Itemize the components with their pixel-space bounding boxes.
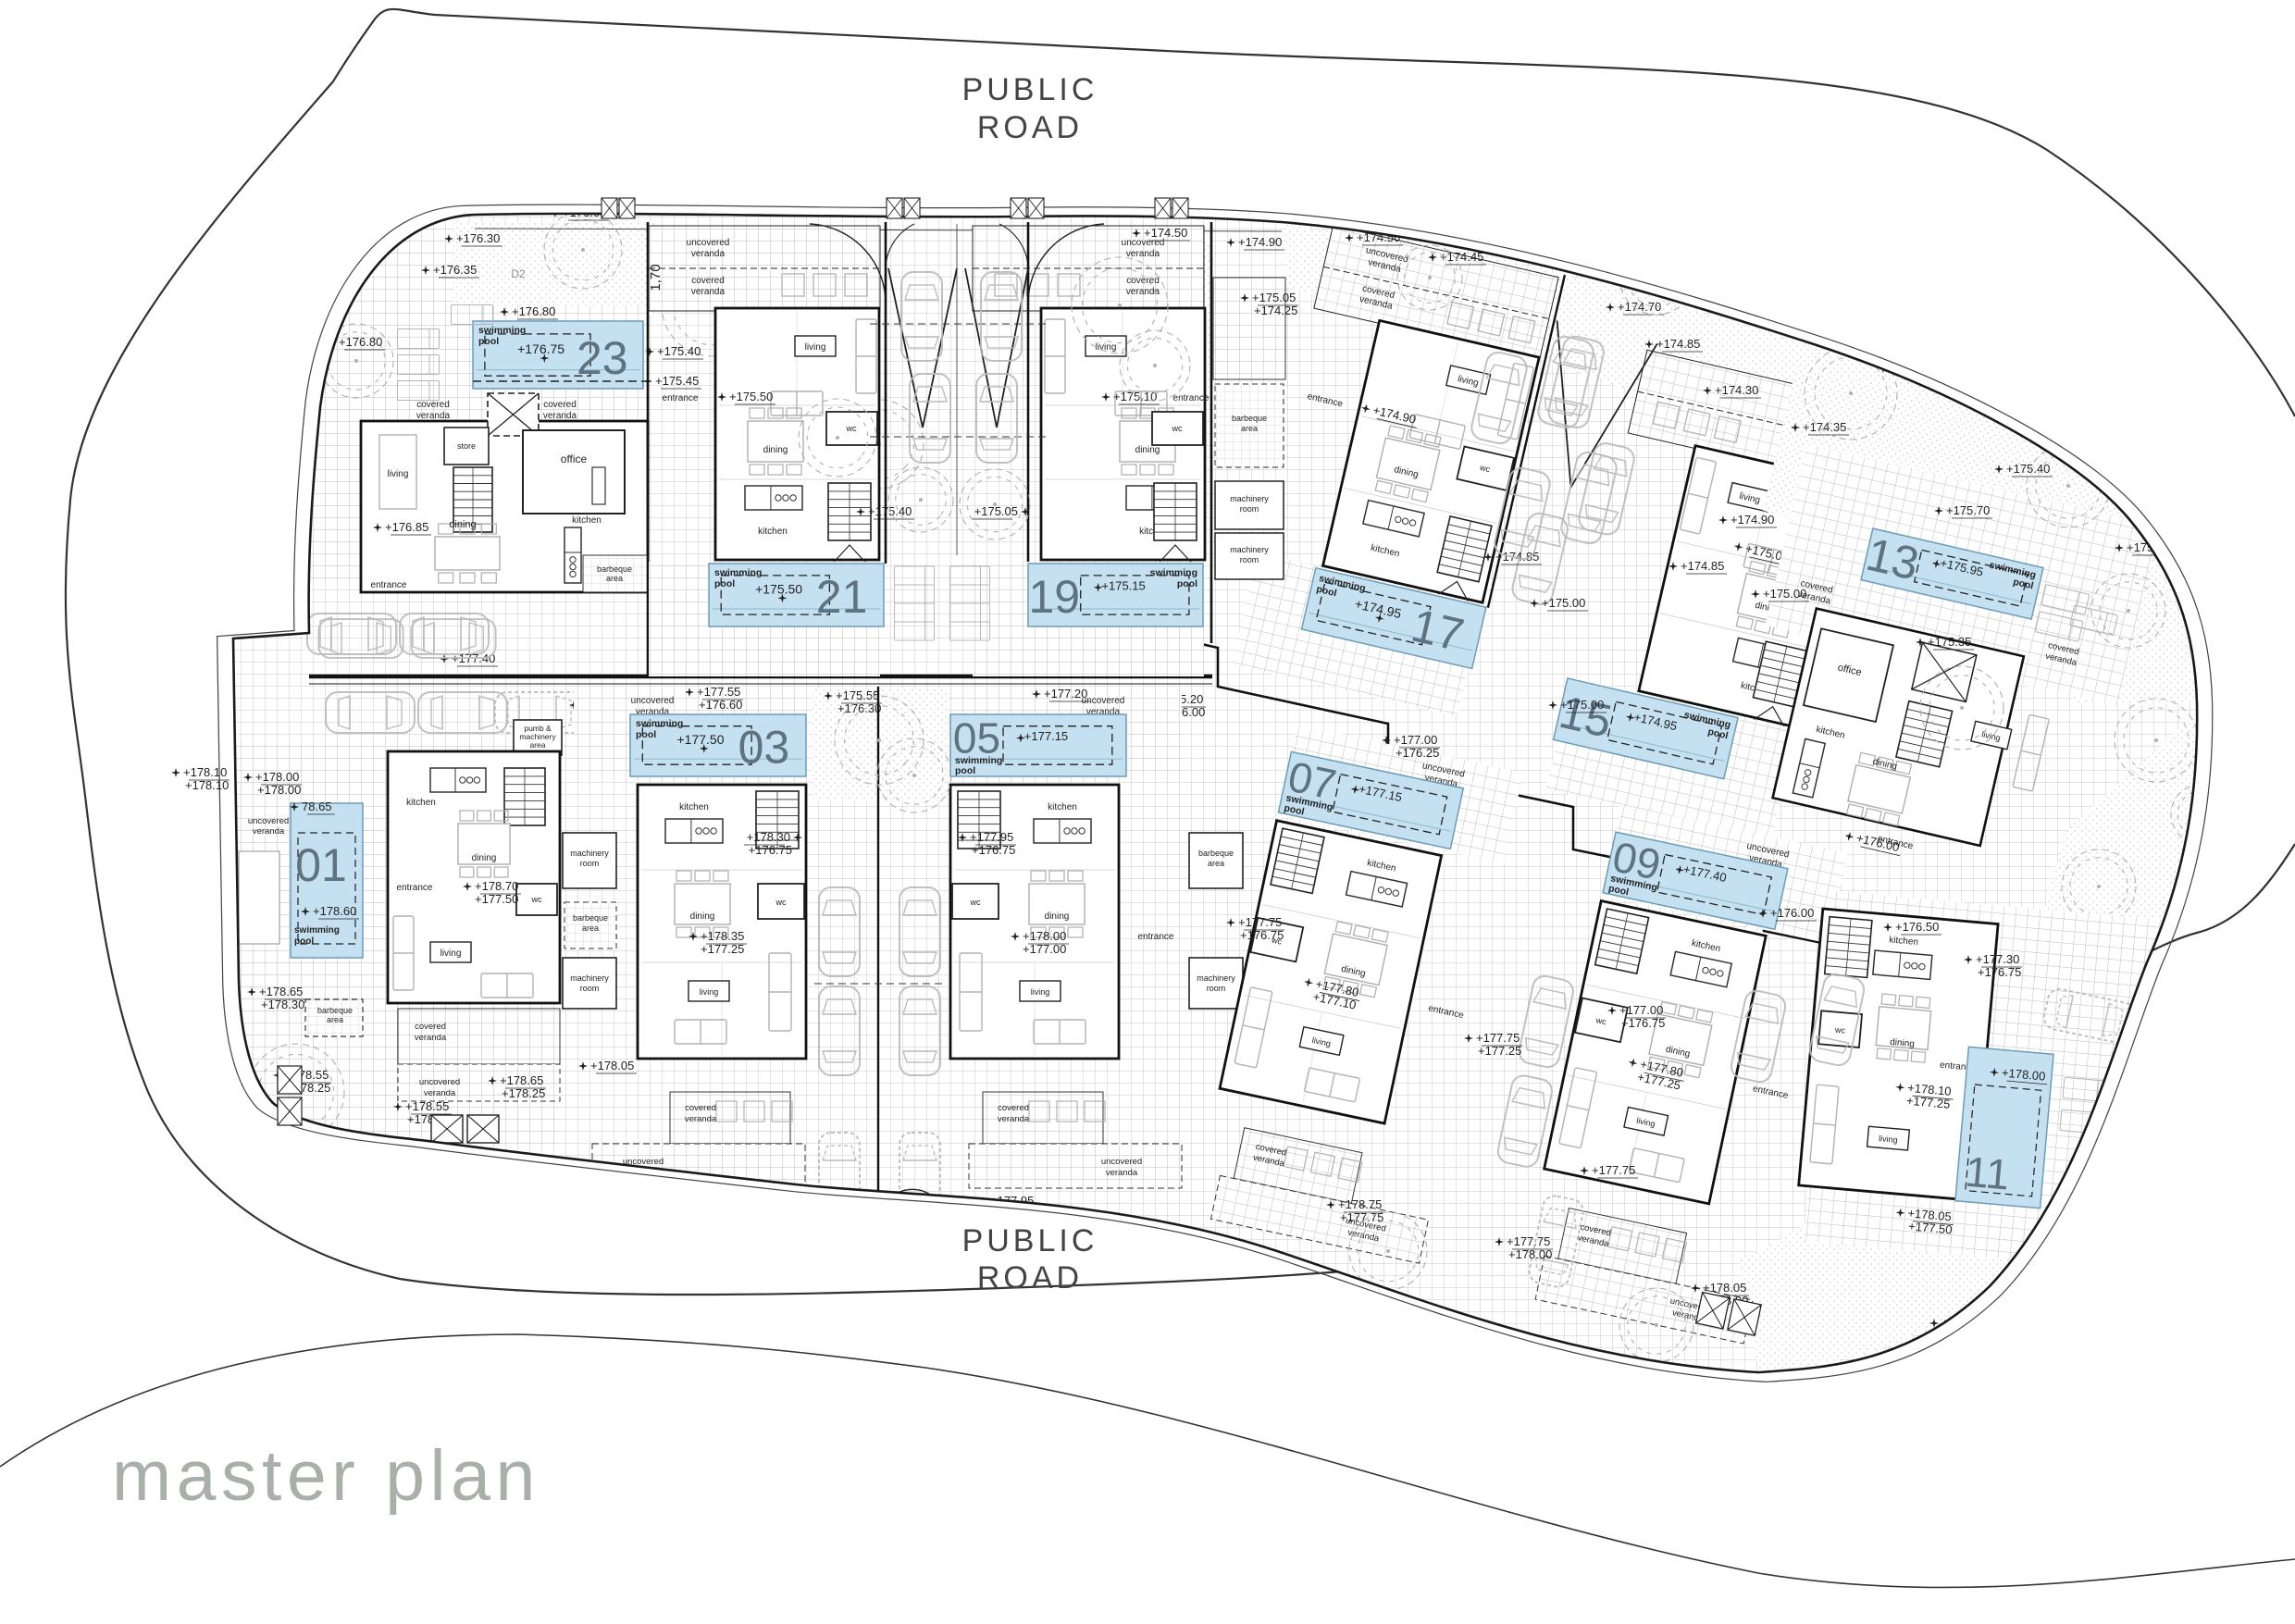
svg-text:+177.75: +177.75 [1340, 1210, 1383, 1224]
svg-text:living: living [805, 342, 826, 353]
svg-text:area: area [529, 740, 545, 750]
svg-text:covered: covered [685, 1103, 716, 1113]
svg-text:21: 21 [816, 571, 868, 623]
svg-text:+178.05: +178.05 [1703, 1281, 1746, 1295]
svg-text:+175.40: +175.40 [868, 504, 912, 518]
svg-text:+176.80: +176.80 [339, 335, 382, 349]
svg-text:entrance: entrance [1138, 932, 1174, 942]
svg-text:area: area [1241, 424, 1258, 433]
svg-text:+174.85: +174.85 [1656, 337, 1700, 351]
svg-text:+174.85: +174.85 [1495, 550, 1539, 564]
svg-text:area: area [582, 924, 599, 933]
svg-text:entrance: entrance [1173, 393, 1210, 403]
svg-text:barbeque: barbeque [1198, 849, 1234, 858]
svg-text:machinery: machinery [1197, 973, 1235, 983]
svg-text:uncovered: uncovered [631, 696, 675, 706]
svg-text:machinery: machinery [1230, 494, 1269, 503]
svg-text:room: room [1207, 984, 1226, 993]
svg-text:machinery: machinery [1230, 545, 1269, 554]
svg-text:+178.70: +178.70 [475, 879, 518, 893]
svg-text:+177.95: +177.95 [970, 830, 1013, 844]
svg-text:+174.25: +174.25 [1254, 304, 1297, 317]
svg-text:veranda: veranda [416, 411, 451, 421]
svg-text:+175.50: +175.50 [755, 582, 802, 597]
svg-text:veranda: veranda [424, 1088, 456, 1098]
svg-text:covered: covered [415, 1022, 446, 1032]
svg-text:master plan: master plan [112, 1436, 540, 1516]
svg-text:+175.05: +175.05 [974, 504, 1018, 518]
svg-text:+177.25: +177.25 [1478, 1044, 1521, 1058]
svg-text:kitchen: kitchen [406, 798, 436, 808]
svg-text:veranda: veranda [253, 826, 285, 837]
svg-text:+174.30: +174.30 [1715, 383, 1758, 397]
svg-text:01: 01 [295, 839, 347, 891]
svg-text:barbeque: barbeque [317, 1006, 353, 1015]
svg-text:veranda: veranda [691, 287, 726, 297]
svg-text:barbeque: barbeque [573, 913, 608, 923]
svg-text:+175.00: +175.00 [1763, 587, 1806, 601]
svg-text:+178.00: +178.00 [1023, 929, 1066, 943]
svg-text:23: 23 [577, 332, 628, 384]
svg-text:covered: covered [416, 400, 450, 410]
svg-text:+177.25: +177.25 [701, 942, 744, 956]
svg-text:area: area [1208, 859, 1224, 868]
svg-text:kitchen: kitchen [679, 802, 709, 812]
svg-text:room: room [580, 859, 600, 868]
svg-text:+177.00: +177.00 [1619, 1003, 1663, 1017]
svg-text:uncovered: uncovered [1101, 1157, 1142, 1167]
svg-text:+177.75: +177.75 [1592, 1163, 1635, 1177]
svg-text:covered: covered [998, 1103, 1029, 1113]
svg-text:+177.50: +177.50 [475, 892, 518, 906]
svg-text:dining: dining [1135, 445, 1160, 455]
svg-text:+175.45: +175.45 [655, 374, 699, 388]
svg-text:03: 03 [738, 721, 790, 773]
svg-text:+176.00: +176.00 [1770, 906, 1814, 920]
svg-text:dining: dining [690, 911, 715, 922]
svg-text:wc: wc [970, 898, 981, 907]
svg-text:room: room [580, 984, 600, 993]
svg-text:+175.00: +175.00 [1560, 698, 1604, 712]
svg-text:+176.80: +176.80 [512, 304, 555, 318]
svg-text:+177.15: +177.15 [1024, 729, 1068, 743]
svg-text:swimming: swimming [294, 925, 340, 936]
svg-text:+175.50: +175.50 [729, 390, 773, 403]
svg-text:+174.70: +174.70 [1618, 300, 1661, 314]
svg-text:+178.75: +178.75 [1338, 1197, 1382, 1211]
svg-text:covered: covered [543, 400, 577, 410]
svg-text:office: office [561, 452, 588, 465]
svg-text:entrance: entrance [397, 883, 433, 893]
svg-text:pool: pool [294, 936, 314, 947]
svg-text:78.65: 78.65 [302, 800, 332, 813]
svg-text:PUBLIC: PUBLIC [962, 1223, 1098, 1258]
svg-text:living: living [1879, 1134, 1898, 1145]
svg-text:+177.50: +177.50 [677, 732, 725, 747]
svg-text:entrance: entrance [663, 393, 699, 403]
svg-text:dining: dining [472, 853, 497, 863]
svg-text:room: room [1240, 555, 1259, 564]
svg-text:+176.75: +176.75 [1621, 1016, 1665, 1030]
svg-text:+174.90: +174.90 [1731, 513, 1774, 527]
svg-text:living: living [440, 948, 462, 959]
svg-text:kitchen: kitchen [572, 515, 602, 526]
svg-text:+175.40: +175.40 [657, 344, 701, 358]
svg-text:uncovered: uncovered [1082, 696, 1125, 706]
svg-text:+178.00: +178.00 [255, 770, 299, 784]
svg-text:+175.40: +175.40 [2006, 462, 2050, 476]
svg-text:+178.10: +178.10 [183, 765, 227, 779]
svg-text:+176.75: +176.75 [517, 341, 564, 356]
svg-text:+176.60: +176.60 [699, 698, 742, 712]
svg-text:veranda: veranda [691, 249, 726, 259]
svg-text:+178.30: +178.30 [261, 998, 304, 1011]
svg-text:+178.65: +178.65 [259, 985, 303, 998]
svg-text:barbeque: barbeque [597, 564, 632, 574]
svg-text:covered: covered [1126, 276, 1160, 286]
svg-text:pool: pool [636, 729, 656, 740]
svg-text:+177.20: +177.20 [1044, 687, 1087, 700]
svg-text:ROAD: ROAD [977, 1260, 1083, 1295]
svg-text:swimming: swimming [636, 718, 683, 729]
svg-text:+175.10: +175.10 [1113, 390, 1157, 403]
svg-text:swimming: swimming [478, 325, 526, 336]
svg-text:veranda: veranda [1126, 249, 1160, 259]
svg-text:kitchen: kitchen [758, 527, 788, 537]
svg-text:ROAD: ROAD [977, 110, 1083, 145]
svg-text:wc: wc [531, 895, 542, 904]
svg-text:+176.25: +176.25 [1396, 746, 1439, 760]
svg-text:+175.70: +175.70 [1946, 503, 1990, 517]
svg-text:dining: dining [763, 445, 788, 455]
svg-text:machinery: machinery [570, 849, 609, 858]
svg-text:+175.55: +175.55 [836, 688, 879, 702]
svg-text:+174.85: +174.85 [1681, 559, 1724, 573]
svg-text:wc: wc [1834, 1025, 1846, 1035]
svg-text:+178.65: +178.65 [500, 1073, 543, 1087]
svg-text:+178.05: +178.05 [590, 1059, 634, 1072]
svg-text:wc: wc [775, 898, 787, 907]
svg-text:+176.75: +176.75 [1240, 928, 1284, 942]
svg-text:+178.25: +178.25 [502, 1086, 545, 1100]
svg-text:barbeque: barbeque [1232, 414, 1267, 423]
svg-text:+175.05: +175.05 [1252, 291, 1296, 304]
svg-text:dining: dining [449, 519, 476, 530]
svg-text:area: area [327, 1015, 343, 1024]
svg-text:room: room [1240, 504, 1259, 514]
svg-text:+176.75: +176.75 [972, 843, 1015, 857]
svg-text:living: living [1031, 987, 1050, 997]
svg-text:+176.50: +176.50 [1895, 920, 1939, 934]
svg-text:area: area [606, 574, 623, 583]
svg-text:+178.00: +178.00 [257, 783, 301, 797]
svg-text:living: living [388, 469, 409, 479]
svg-text:veranda: veranda [543, 411, 577, 421]
svg-text:+178.60: +178.60 [313, 904, 356, 918]
svg-text:D2: D2 [511, 267, 526, 280]
svg-text:11: 11 [1964, 1147, 2012, 1199]
svg-text:wc: wc [1172, 424, 1183, 433]
svg-text:+177.75: +177.75 [1507, 1234, 1550, 1248]
svg-text:veranda: veranda [685, 1114, 717, 1124]
svg-text:+176.30: +176.30 [456, 231, 500, 245]
svg-text:+178.35: +178.35 [701, 929, 744, 943]
svg-text:pool: pool [714, 578, 735, 589]
svg-text:machinery: machinery [570, 973, 609, 983]
svg-text:dining: dining [1045, 911, 1070, 922]
svg-text:+175.35: +175.35 [1928, 635, 1971, 649]
svg-text:+176.75: +176.75 [749, 843, 792, 857]
svg-text:PUBLIC: PUBLIC [962, 72, 1098, 107]
svg-text:+176.75: +176.75 [1978, 965, 2021, 979]
svg-text:+175.00: +175.00 [1542, 596, 1585, 610]
svg-text:veranda: veranda [1106, 1168, 1138, 1178]
svg-text:19: 19 [1028, 571, 1080, 623]
svg-text:+178.30: +178.30 [747, 830, 790, 844]
svg-text:kitchen: kitchen [1048, 802, 1077, 812]
svg-text:+178.10: +178.10 [185, 778, 229, 792]
svg-text:uncovered: uncovered [419, 1077, 460, 1087]
svg-text:+174.50: +174.50 [1144, 226, 1187, 240]
svg-text:dining: dining [1890, 1037, 1916, 1049]
svg-text:pool: pool [955, 765, 975, 776]
svg-text:swimming: swimming [714, 567, 762, 578]
svg-text:uncovered: uncovered [687, 238, 730, 248]
svg-text:living: living [700, 987, 719, 997]
svg-text:pool: pool [1177, 578, 1197, 589]
svg-text:entrance: entrance [371, 580, 407, 590]
svg-text:+175.15: +175.15 [1101, 579, 1145, 593]
svg-text:veranda: veranda [415, 1033, 447, 1043]
svg-text:store: store [457, 441, 476, 451]
svg-text:+177.00: +177.00 [1394, 733, 1437, 747]
svg-text:+174.90: +174.90 [1238, 235, 1282, 249]
svg-text:uncovered: uncovered [248, 816, 289, 826]
svg-text:+177.30: +177.30 [1976, 952, 2019, 966]
svg-text:+177.55: +177.55 [697, 685, 740, 699]
svg-text:wc: wc [846, 424, 857, 433]
svg-text:+176.85: +176.85 [385, 520, 428, 534]
svg-text:covered: covered [691, 276, 725, 286]
svg-text:1,70: 1,70 [648, 264, 664, 291]
svg-text:+178.00: +178.00 [1508, 1247, 1552, 1261]
svg-text:pool: pool [478, 336, 499, 347]
svg-text:+176.35: +176.35 [433, 263, 477, 277]
svg-text:veranda: veranda [998, 1114, 1030, 1124]
svg-text:+177.75: +177.75 [1476, 1031, 1520, 1045]
svg-text:swimming: swimming [1150, 567, 1197, 578]
svg-text:+177.75: +177.75 [1238, 915, 1282, 929]
svg-text:+177.00: +177.00 [1023, 942, 1066, 956]
